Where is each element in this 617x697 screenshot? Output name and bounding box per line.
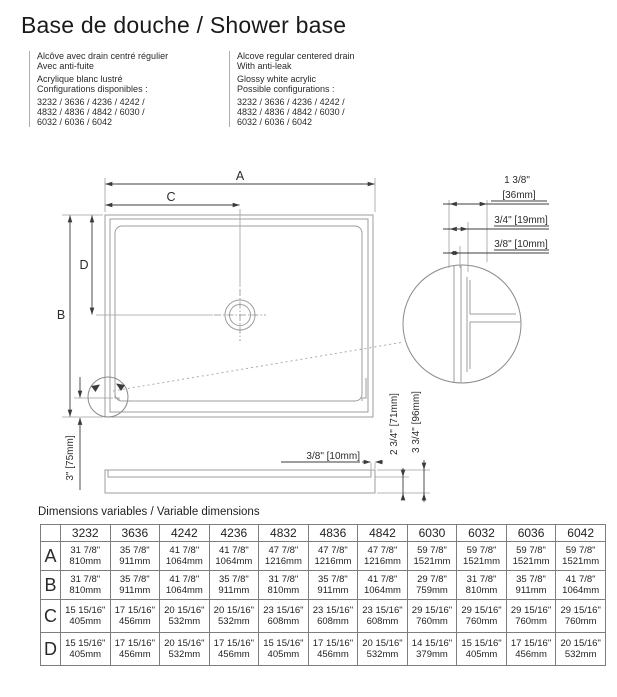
plan-view [105, 215, 373, 417]
dim-cell: 59 7/8"1521mm [407, 542, 457, 571]
table-row: C 15 15/16"405mm 17 15/16"456mm 20 15/16… [41, 600, 606, 633]
dim-cell: 17 15/16"456mm [110, 600, 160, 633]
dim-cell: 14 15/16"379mm [407, 633, 457, 666]
dim-cell: 47 7/8"1216mm [308, 542, 358, 571]
row-label: A [41, 542, 61, 571]
dim-cell: 29 7/8"759mm [407, 571, 457, 600]
dim-cell: 59 7/8"1521mm [556, 542, 606, 571]
column-header: 4236 [209, 525, 259, 542]
dim-cell: 20 15/16"532mm [209, 600, 259, 633]
column-header: 6032 [457, 525, 507, 542]
column-header: 4832 [259, 525, 309, 542]
corner-cell [41, 525, 61, 542]
detail-dim-36mm-metric: [36mm] [502, 190, 536, 201]
column-header: 4836 [308, 525, 358, 542]
detail-view [403, 265, 521, 383]
dim-cell: 41 7/8"1064mm [160, 542, 210, 571]
dim-cell: 15 15/16"405mm [457, 633, 507, 666]
column-header: 3636 [110, 525, 160, 542]
detail-dim-19mm: 3/4" [19mm] [494, 215, 548, 226]
dim-cell: 41 7/8"1064mm [358, 571, 408, 600]
dim-cell: 17 15/16"456mm [209, 633, 259, 666]
dim-cell: 35 7/8"911mm [110, 542, 160, 571]
technical-drawing: A C B D 1 3/8" [36mm] 3/4" [19mm] 3/8" [… [0, 0, 617, 520]
dim-label-d: D [79, 258, 88, 272]
dim-cell: 35 7/8"911mm [506, 571, 556, 600]
dim-cell: 23 15/16"608mm [308, 600, 358, 633]
dim-cell: 31 7/8"810mm [457, 571, 507, 600]
table-caption: Dimensions variables / Variable dimensio… [38, 506, 260, 518]
dim-cell: 29 15/16"760mm [506, 600, 556, 633]
side-dim-10mm-lip: 3/8" [10mm] [306, 451, 360, 462]
extension-lines [62, 178, 487, 493]
dim-cell: 15 15/16"405mm [61, 600, 111, 633]
dim-cell: 35 7/8"911mm [308, 571, 358, 600]
dim-cell: 47 7/8"1216mm [358, 542, 408, 571]
side-dim-96mm: 3 3/4" [96mm] [411, 391, 422, 453]
dim-cell: 20 15/16"532mm [358, 633, 408, 666]
dim-cell: 20 15/16"532mm [160, 633, 210, 666]
dim-cell: 15 15/16"405mm [259, 633, 309, 666]
dim-label-a: A [236, 169, 245, 183]
dim-cell: 31 7/8"810mm [61, 542, 111, 571]
dim-cell: 29 15/16"760mm [457, 600, 507, 633]
table-row: B 31 7/8"810mm 35 7/8"911mm 41 7/8"1064m… [41, 571, 606, 600]
row-label: D [41, 633, 61, 666]
dim-cell: 20 15/16"532mm [160, 600, 210, 633]
side-view [105, 470, 375, 493]
table-header-row: 3232 3636 4242 4236 4832 4836 4842 6030 … [41, 525, 606, 542]
row-label: B [41, 571, 61, 600]
dim-cell: 35 7/8"911mm [110, 571, 160, 600]
dimensions-table: 3232 3636 4242 4236 4832 4836 4842 6030 … [40, 524, 606, 666]
dim-cell: 17 15/16"456mm [110, 633, 160, 666]
dim-label-b: B [57, 308, 65, 322]
column-header: 6030 [407, 525, 457, 542]
dim-cell: 59 7/8"1521mm [506, 542, 556, 571]
dim-cell: 23 15/16"608mm [358, 600, 408, 633]
dim-label-c: C [166, 190, 175, 204]
column-header: 6036 [506, 525, 556, 542]
dim-cell: 31 7/8"810mm [61, 571, 111, 600]
side-dim-75mm: 3" [75mm] [65, 435, 76, 480]
dim-cell: 23 15/16"608mm [259, 600, 309, 633]
detail-dim-10mm: 3/8" [10mm] [494, 239, 548, 250]
dim-cell: 35 7/8"911mm [209, 571, 259, 600]
dim-cell: 41 7/8"1064mm [160, 571, 210, 600]
dim-cell: 31 7/8"810mm [259, 571, 309, 600]
column-header: 6042 [556, 525, 606, 542]
dim-cell: 29 15/16"760mm [407, 600, 457, 633]
column-header: 4842 [358, 525, 408, 542]
dim-cell: 29 15/16"760mm [556, 600, 606, 633]
drain-symbol [214, 289, 266, 341]
dim-cell: 17 15/16"456mm [506, 633, 556, 666]
dim-cell: 47 7/8"1216mm [259, 542, 309, 571]
side-dim-71mm: 2 3/4" [71mm] [389, 393, 400, 455]
row-label: C [41, 600, 61, 633]
table-row: D 15 15/16"405mm 17 15/16"456mm 20 15/16… [41, 633, 606, 666]
dim-cell: 59 7/8"1521mm [457, 542, 507, 571]
dim-cell: 15 15/16"405mm [61, 633, 111, 666]
callout-arrow-icon [91, 385, 100, 393]
column-header: 3232 [61, 525, 111, 542]
detail-dim-36mm-inches: 1 3/8" [504, 175, 530, 186]
dim-cell: 17 15/16"456mm [308, 633, 358, 666]
dim-cell: 41 7/8"1064mm [209, 542, 259, 571]
dim-cell: 41 7/8"1064mm [556, 571, 606, 600]
dim-cell: 20 15/16"532mm [556, 633, 606, 666]
table-row: A 31 7/8"810mm 35 7/8"911mm 41 7/8"1064m… [41, 542, 606, 571]
column-header: 4242 [160, 525, 210, 542]
shower-base-spec-page: { "header": { "title": "Base de douche /… [0, 0, 617, 697]
detail-callout [88, 342, 404, 417]
